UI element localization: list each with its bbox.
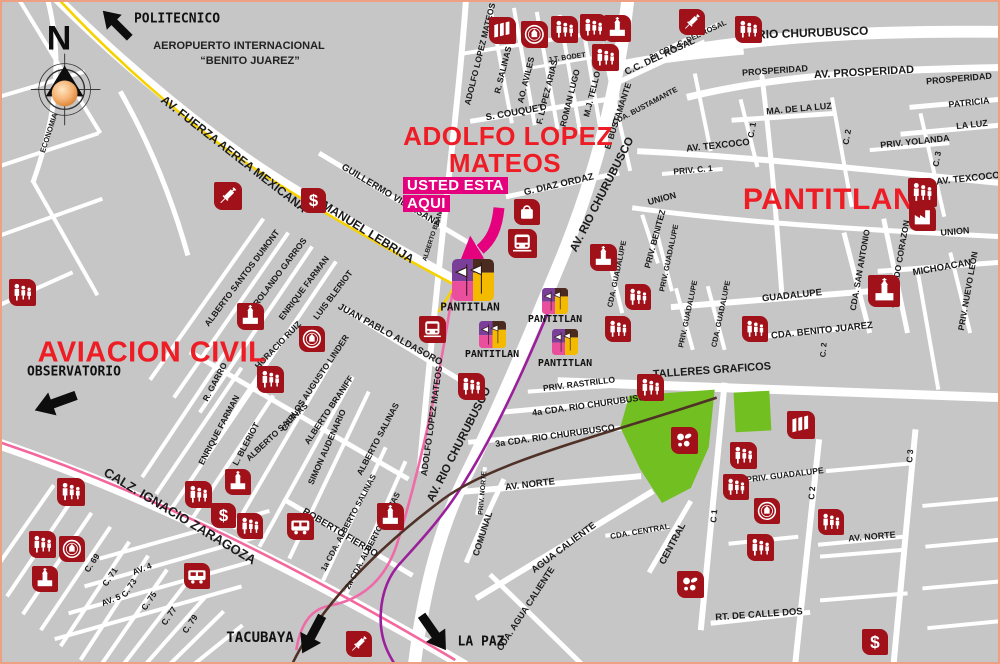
people-icon <box>730 442 757 469</box>
metro-station-label: PANTITLAN <box>538 359 592 369</box>
destination-label: POLITECNICO <box>134 13 220 26</box>
church-icon <box>377 503 404 530</box>
factory-icon <box>909 204 936 231</box>
metro-station-icon <box>552 329 578 355</box>
seal-icon <box>299 326 325 352</box>
book-icon <box>489 17 516 44</box>
airport-label-line2: “BENITO JUAREZ” <box>200 55 299 67</box>
book-icon <box>787 411 815 439</box>
map-title: PANTITLAN <box>743 185 915 215</box>
people-icon <box>580 14 607 41</box>
street-label: C 3 <box>905 449 915 463</box>
metro-station-icon <box>452 259 494 301</box>
dollar-icon <box>301 188 326 213</box>
church-icon <box>590 244 617 271</box>
people-icon <box>551 16 578 43</box>
church-icon <box>868 275 900 307</box>
airport-label-line1: AEROPUERTO INTERNACIONAL <box>153 40 325 52</box>
metro-station-icon <box>542 288 568 314</box>
people-icon <box>605 316 631 342</box>
destination-label: TACUBAYA <box>226 631 293 645</box>
map-title: MATEOS <box>449 150 561 176</box>
metrofront-icon <box>419 316 446 343</box>
street-label: C 1 <box>709 509 719 523</box>
syringe-icon <box>214 182 242 210</box>
people-icon <box>723 474 749 500</box>
sports-icon <box>677 571 704 598</box>
sports-icon <box>671 427 698 454</box>
street-label: C 2 <box>807 486 817 500</box>
people-icon <box>747 534 774 561</box>
seal-icon <box>59 536 85 562</box>
seal-icon <box>754 498 780 524</box>
people-icon <box>257 366 284 393</box>
people-icon <box>818 509 844 535</box>
metrofront-icon <box>508 229 537 258</box>
you-are-here-badge-line1: USTED ESTA <box>403 177 508 194</box>
metro-station-label: PANTITLAN <box>440 302 500 313</box>
bus-icon <box>184 563 210 589</box>
dollar-icon <box>211 503 236 528</box>
station-area-map: $ <box>0 0 1000 664</box>
map-title: AVIACION CIVIL <box>38 339 267 368</box>
people-icon <box>29 531 56 558</box>
dollar-icon <box>862 629 888 655</box>
people-icon <box>9 279 36 306</box>
people-icon <box>637 374 664 401</box>
you-are-here-arrow <box>459 208 499 264</box>
syringe-icon <box>679 9 705 35</box>
compass-north-letter: N <box>47 20 72 59</box>
people-icon <box>592 44 619 71</box>
people-icon <box>625 284 651 310</box>
you-are-here-badge-line2: AQUI <box>403 195 450 212</box>
syringe-icon <box>346 631 372 657</box>
metro-station-icon <box>479 321 506 348</box>
street-label: C. 2 <box>819 342 828 357</box>
metro-station-label: PANTITLAN <box>465 350 519 360</box>
destination-label: OBSERVATORIO <box>27 366 121 379</box>
seal-icon <box>521 21 548 48</box>
people-icon <box>237 513 263 539</box>
metro-station-label: PANTITLAN <box>528 315 582 325</box>
destination-label: LA PAZ <box>458 636 505 649</box>
bag-icon <box>514 199 540 225</box>
bus-icon <box>287 513 314 540</box>
people-icon <box>735 16 762 43</box>
church-icon <box>604 15 631 42</box>
people-icon <box>458 373 485 400</box>
map-title: ADOLFO LOPEZ <box>403 123 613 149</box>
church-icon <box>32 566 58 592</box>
church-icon <box>225 469 251 495</box>
people-icon <box>57 478 85 506</box>
people-icon <box>742 316 768 342</box>
church-icon <box>237 303 264 330</box>
people-icon <box>908 178 937 207</box>
people-icon <box>185 481 212 508</box>
